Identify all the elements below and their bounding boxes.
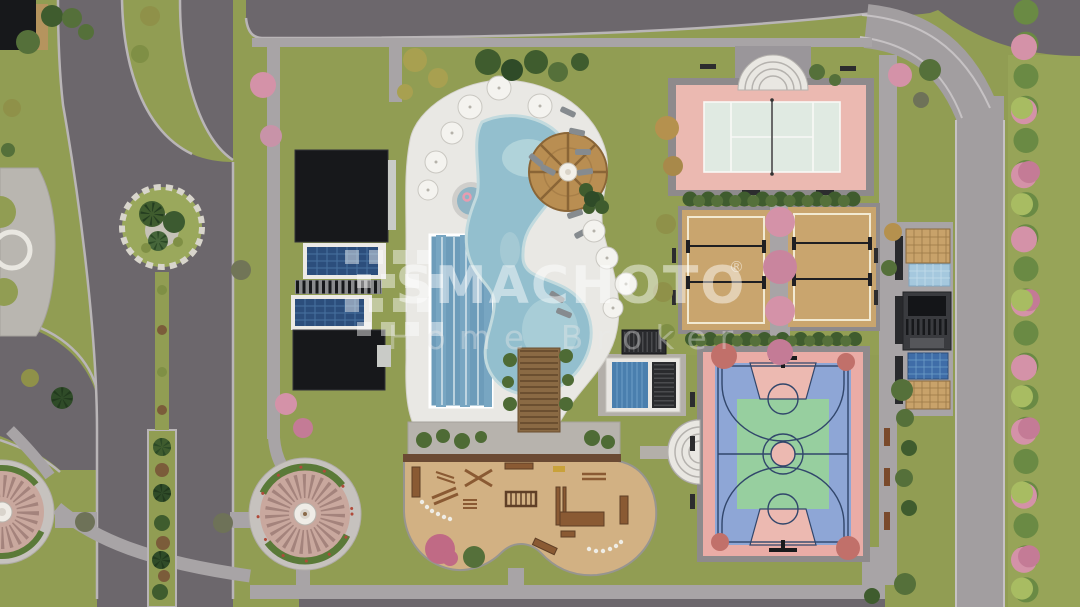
west-paved-plaza [0,168,55,336]
watermark-tagline: Home Broker [388,318,746,357]
watermark-registered: ® [729,258,744,276]
watermark: SMACHOTO ® Home Broker [345,250,747,357]
watermark-brand: SMACHOTO [395,256,746,316]
bottom-road [299,599,885,607]
solar-roof-buildings [291,150,396,390]
sand-court-b [788,207,876,327]
top-sidewalk [252,38,872,47]
palm-island [122,187,202,267]
pergola-walkway [518,348,560,432]
site-plan-render: SMACHOTO ® Home Broker [0,0,1080,607]
fountain-plaza-center [249,458,361,570]
basketball-court [668,346,890,562]
palm-trees [51,387,73,409]
